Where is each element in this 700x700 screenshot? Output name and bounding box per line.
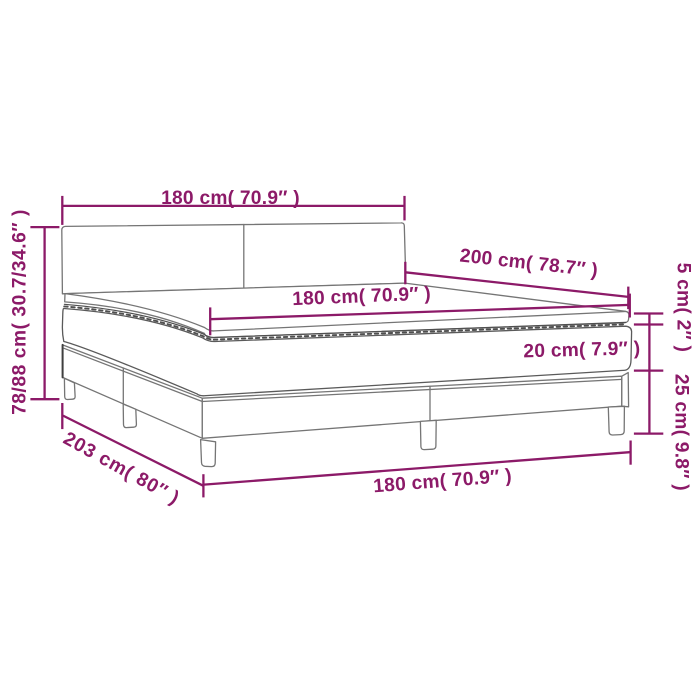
svg-text:25 cm( 9.8″ ): 25 cm( 9.8″ ) [671,374,692,491]
svg-text:203 cm( 80″ ): 203 cm( 80″ ) [60,428,183,509]
svg-text:20 cm( 7.9″ ): 20 cm( 7.9″ ) [523,338,640,362]
svg-text:5 cm( 2″ ): 5 cm( 2″ ) [672,263,693,353]
svg-text:78/88 cm( 30.7/34.6″ ): 78/88 cm( 30.7/34.6″ ) [10,209,31,415]
svg-text:200 cm( 78.7″ ): 200 cm( 78.7″ ) [459,245,599,281]
svg-text:180 cm( 70.9″ ): 180 cm( 70.9″ ) [161,188,300,209]
